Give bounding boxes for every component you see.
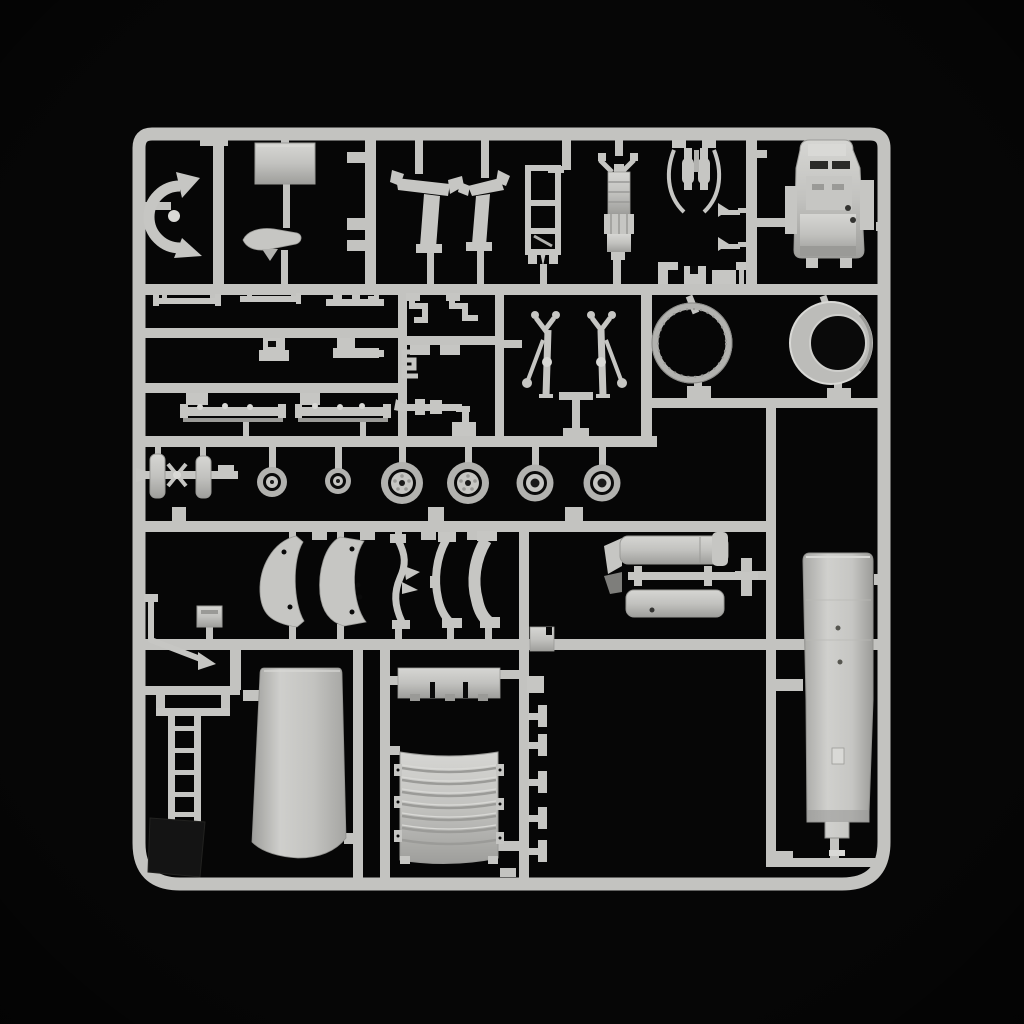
photo-vignette bbox=[0, 0, 1024, 1024]
sprue-photo bbox=[0, 0, 1024, 1024]
sprue-photo-canvas bbox=[0, 0, 1024, 1024]
